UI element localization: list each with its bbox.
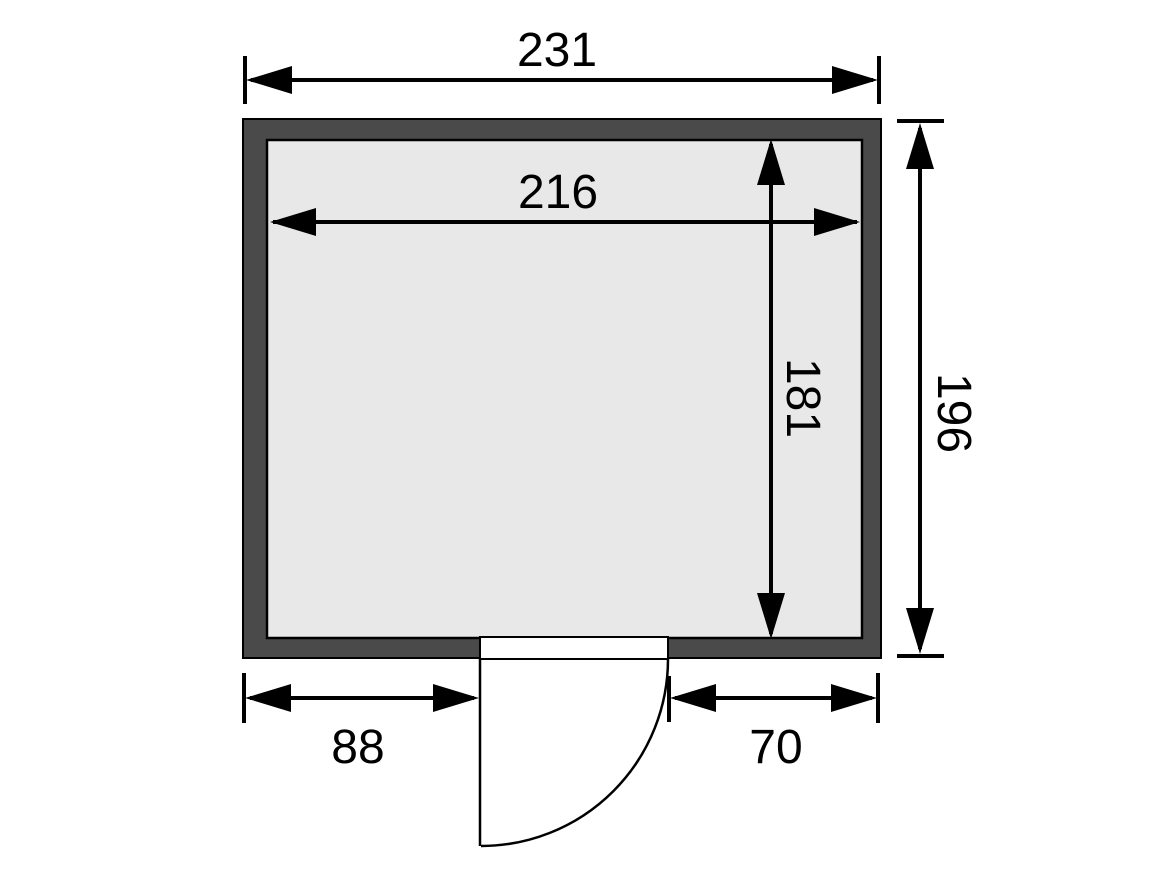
dim-label-inner-depth: 181 xyxy=(776,358,829,438)
door-opening xyxy=(480,637,668,659)
dim-label-outer-depth: 196 xyxy=(927,373,980,453)
floor-plan-drawing: 231 216 181 196 xyxy=(0,0,1170,878)
dim-label-door-left-offset: 88 xyxy=(331,721,384,774)
dim-label-outer-width: 231 xyxy=(517,24,597,77)
floor-plan-page: 231 216 181 196 xyxy=(0,0,1170,878)
dim-label-door-right-offset: 70 xyxy=(749,721,802,774)
dim-label-inner-width: 216 xyxy=(518,166,598,219)
